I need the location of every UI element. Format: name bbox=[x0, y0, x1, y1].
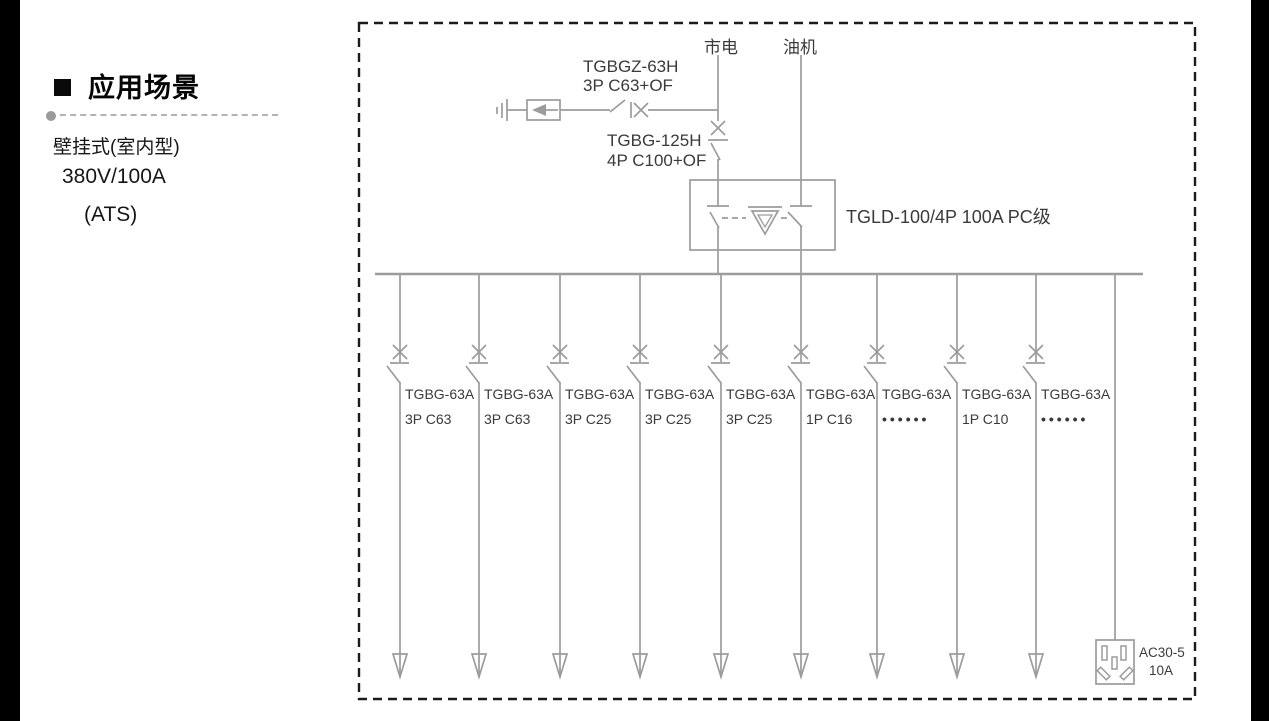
socket-model-label: AC30-5 bbox=[1139, 645, 1185, 660]
branch-spec-label: •••••• bbox=[1041, 411, 1088, 427]
branch-circuit bbox=[864, 275, 886, 677]
branch-model-label: TGBG-63A bbox=[1041, 386, 1110, 402]
generator-source-label: 油机 bbox=[783, 33, 817, 58]
branch-circuit bbox=[387, 275, 409, 677]
ground-icon bbox=[497, 99, 507, 121]
mains-source-label: 市电 bbox=[704, 33, 738, 58]
branch-circuit bbox=[1023, 275, 1045, 677]
socket-rating-label: 10A bbox=[1149, 663, 1173, 678]
branch-model-label: TGBG-63A bbox=[484, 386, 553, 402]
branch-spec-label: 1P C10 bbox=[962, 411, 1008, 427]
dashed-border bbox=[359, 23, 1195, 699]
schematic-canvas bbox=[0, 0, 1269, 721]
branch-model-label: TGBG-63A bbox=[726, 386, 795, 402]
branch-spec-label: •••••• bbox=[882, 411, 929, 427]
ats-label: TGLD-100/4P 100A PC级 bbox=[846, 203, 1051, 229]
mains-line bbox=[708, 55, 728, 206]
surge-breaker-spec: 3P C63+OF bbox=[583, 76, 673, 96]
socket-icon bbox=[1096, 640, 1134, 684]
branch-spec-label: 3P C25 bbox=[726, 411, 772, 427]
branch-model-label: TGBG-63A bbox=[645, 386, 714, 402]
spd-ground-branch bbox=[497, 99, 718, 121]
branch-model-label: TGBG-63A bbox=[806, 386, 875, 402]
branch-circuits bbox=[387, 275, 1045, 677]
branch-spec-label: 3P C25 bbox=[645, 411, 691, 427]
surge-breaker-model: TGBGZ-63H bbox=[583, 57, 678, 77]
branch-circuit bbox=[788, 275, 810, 677]
branch-model-label: TGBG-63A bbox=[962, 386, 1031, 402]
branch-circuit bbox=[708, 275, 730, 677]
main-breaker-model: TGBG-125H bbox=[607, 131, 701, 151]
branch-model-label: TGBG-63A bbox=[882, 386, 951, 402]
branch-model-label: TGBG-63A bbox=[405, 386, 474, 402]
branch-circuit bbox=[627, 275, 649, 677]
branch-model-label: TGBG-63A bbox=[565, 386, 634, 402]
ats-switch-box bbox=[690, 180, 835, 274]
branch-spec-label: 3P C63 bbox=[405, 411, 451, 427]
branch-spec-label: 3P C25 bbox=[565, 411, 611, 427]
ats-interlock-icon bbox=[748, 207, 782, 234]
main-breaker-spec: 4P C100+OF bbox=[607, 151, 706, 171]
breaker-cross-icon bbox=[634, 103, 648, 117]
branch-circuit bbox=[466, 275, 488, 677]
branch-spec-label: 3P C63 bbox=[484, 411, 530, 427]
branch-spec-label: 1P C16 bbox=[806, 411, 852, 427]
breaker-cross-icon bbox=[711, 121, 725, 135]
branch-circuit bbox=[547, 275, 569, 677]
branch-circuit bbox=[944, 275, 966, 677]
